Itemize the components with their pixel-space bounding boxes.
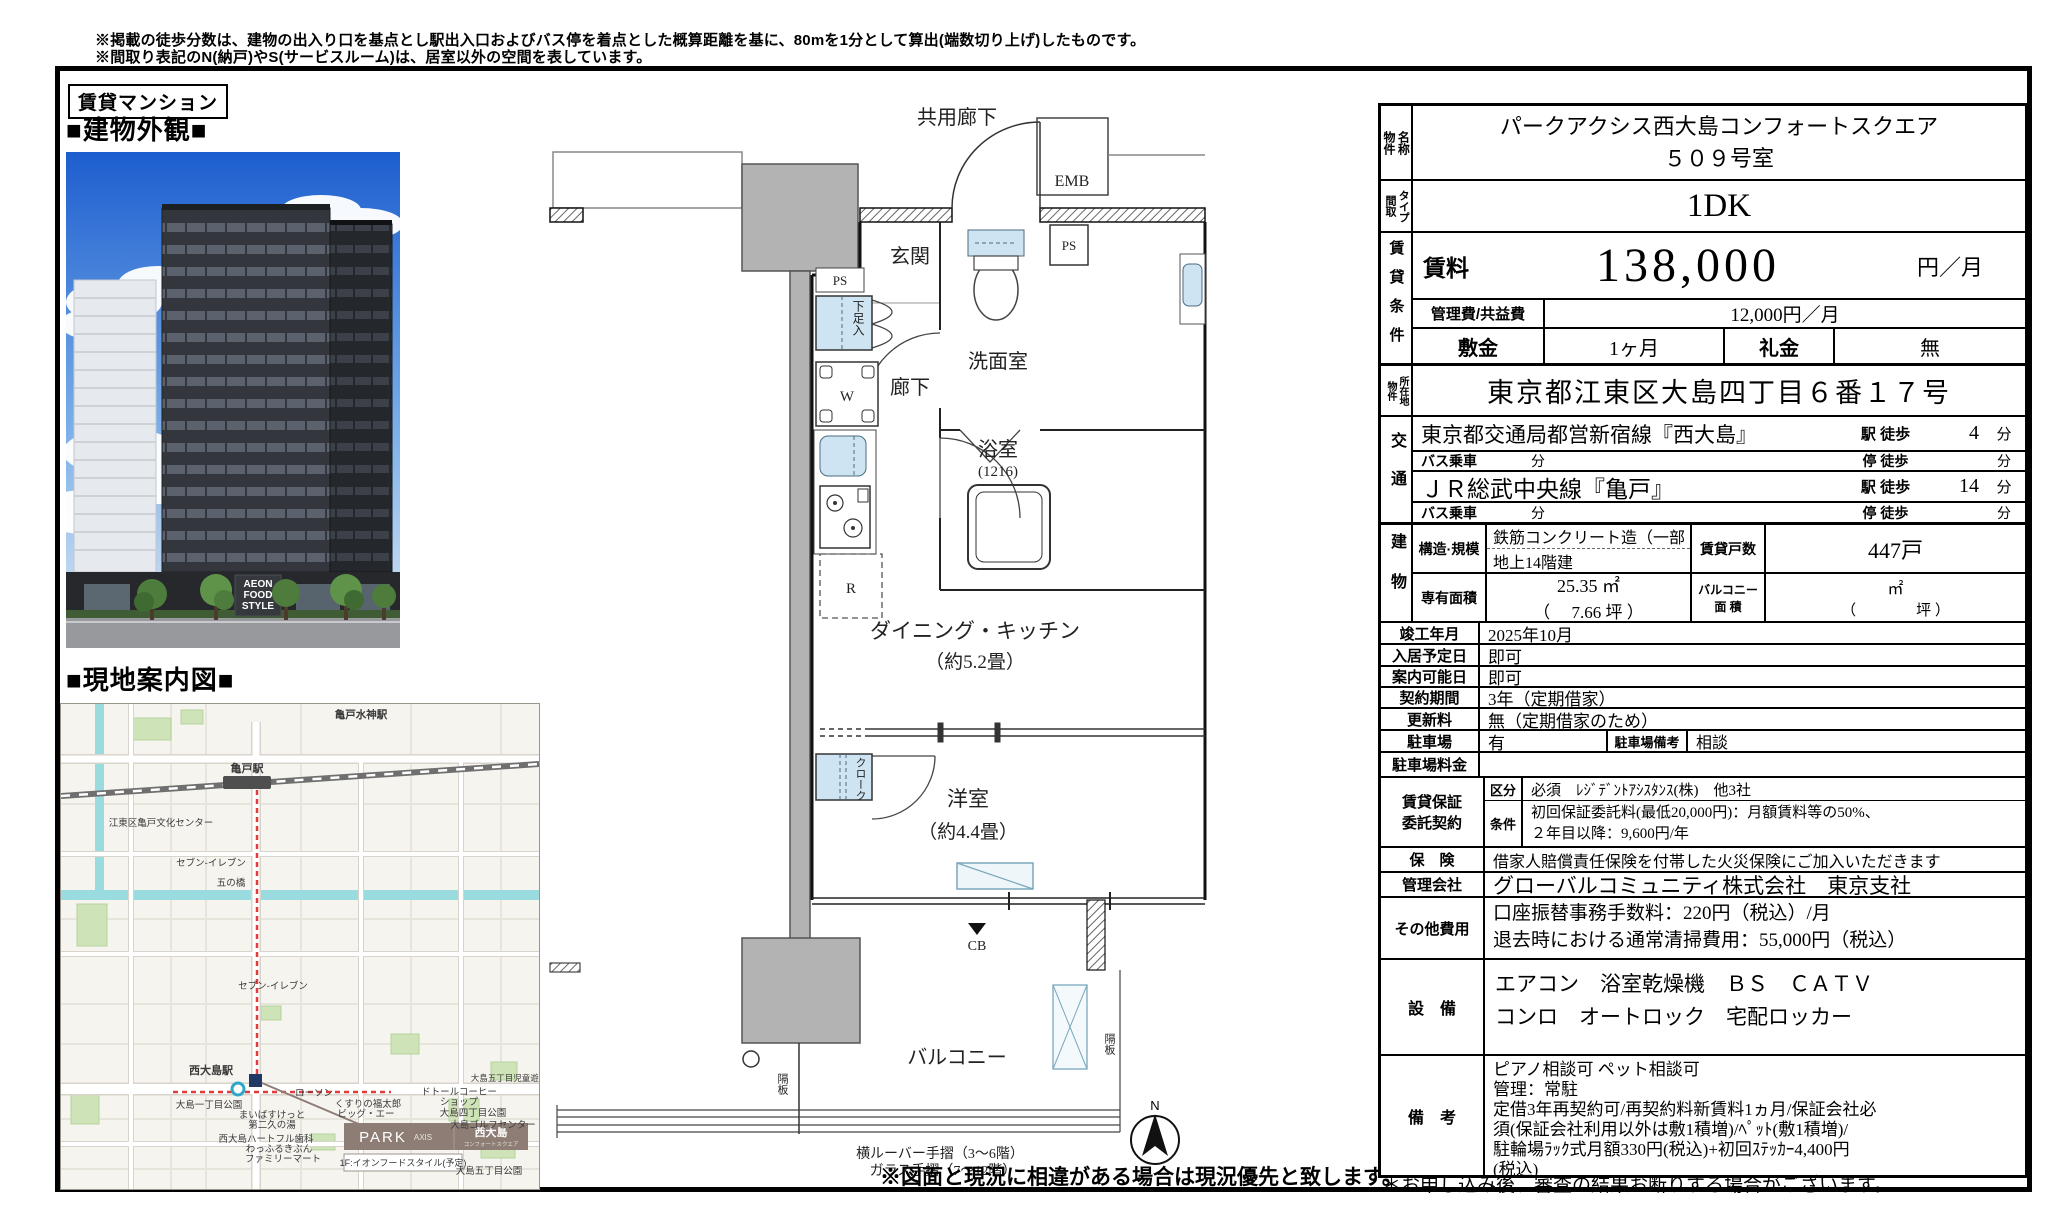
map-label: ショップ (440, 1097, 479, 1108)
room-partition (820, 723, 1205, 742)
structure-label: 構造·規模 (1413, 525, 1485, 572)
units-label: 賃貸戸数 (1690, 525, 1764, 572)
guarantee-cond-label: 条件 (1485, 801, 1521, 846)
map-label: 大島五丁目公園 (456, 1165, 523, 1177)
map-label: 江東区亀戸文化センター (109, 817, 214, 829)
guarantee-cond-value: 初回保証委託料(最低20,000円)：月額賃料等の50%、 ２年目以降：9,60… (1521, 801, 2025, 846)
plan-label-dk: ダイニング・キッチン (870, 619, 1080, 643)
group-access: 交通 東京都交通局都営新宿線『西大島』 駅 徒歩 4 分 バス乗車 分 停 徒歩… (1381, 415, 2025, 522)
management-fee-label: 管理費/共益費 (1413, 300, 1543, 327)
key-money-label: 礼金 (1723, 329, 1833, 363)
parking-fee-value (1478, 753, 2025, 776)
plan-label-washroom: 洗面室 (968, 350, 1028, 373)
equipment-label: 設 備 (1381, 960, 1483, 1054)
plan-label-fridge: R (846, 581, 856, 597)
management-label: 管理会社 (1381, 873, 1483, 896)
map-label: ローソン (295, 1088, 333, 1099)
access3-line: ＪＲ総武中央線『亀戸』 (1413, 472, 1838, 501)
area-value: 25.35 ㎡ (1557, 574, 1620, 598)
plan-label-closet: クローク (854, 757, 866, 801)
access4-mid: 分 (1508, 503, 1568, 522)
plan-label-washer: W (840, 389, 855, 405)
insurance-label: 保 険 (1381, 848, 1483, 871)
plan-label-bath: 浴室 (978, 438, 1018, 461)
deposit-label: 敷金 (1413, 329, 1543, 363)
map-label: 亀戸駅 (231, 761, 264, 775)
key-money-value: 無 (1833, 329, 2025, 363)
plan-label-balcony: バルコニー (907, 1047, 1007, 1069)
kameido-station-marker (223, 776, 271, 789)
other-fees-value: 口座振替事務手数料：220円（税込）/月 退去時における通常清掃費用：55,00… (1483, 898, 2025, 958)
access2-mid: 分 (1508, 452, 1568, 470)
renewal-value: 無（定期借家のため） (1478, 709, 2025, 729)
map-label: セブン-イレブン (176, 857, 246, 869)
plan-label-cb: CB (968, 939, 987, 954)
row-management-fee: 管理費/共益費 12,000円／月 (1413, 298, 2025, 327)
row-access-3: ＪＲ総武中央線『亀戸』 駅 徒歩 14 分 (1413, 470, 2025, 501)
plan-label-emb: EMB (1055, 173, 1090, 190)
cb-marker-icon (968, 923, 986, 935)
row-rent: 賃料 138,000 円／月 (1413, 233, 2025, 298)
park-axis-brand: PARK (359, 1129, 407, 1146)
plan-label-bath-size: (1216) (978, 464, 1018, 480)
parking-fee-label: 駐車場料金 (1381, 753, 1478, 776)
row-equipment: 設 備 エアコン 浴室乾燥機 ＢＳ ＣＡＴＶ コンロ オートロック 宅配ロッカー (1381, 958, 2025, 1054)
aeon-sign-line3: STYLE (242, 601, 275, 612)
white-building (74, 280, 156, 572)
row-area: 専有面積 25.35 ㎡ （ 7.66 坪 ） バルコニー 面 積 ㎡ （ 坪 … (1413, 572, 2025, 621)
insurance-value: 借家人賠償責任保険を付帯した火災保険にご加入いただきます (1483, 848, 2025, 871)
access4-unit: 分 (1983, 503, 2025, 522)
row-viewing: 案内可能日 即可 (1381, 665, 2025, 686)
map-label: 大島四丁目公園 (440, 1107, 507, 1119)
building-label: 建物 (1384, 533, 1408, 613)
map-heading: ■現地案内図■ (66, 660, 234, 697)
guarantee-label: 賃貸保証 委託契約 (1381, 778, 1483, 846)
parking-note-label: 駐車場備考 (1606, 731, 1686, 751)
row-renewal: 更新料 無（定期借家のため） (1381, 707, 2025, 729)
viewing-value: 即可 (1478, 667, 2025, 686)
access1-unit: 分 (1983, 417, 2025, 450)
map-label: 西大島駅 (189, 1063, 233, 1077)
plan-label-entrance: 玄関 (890, 245, 930, 268)
access3-unit: 分 (1983, 472, 2025, 501)
floor-plan: 共用廊下 EMB (520, 78, 1230, 1178)
row-access-4: バス乗車 分 停 徒歩 分 (1413, 501, 2025, 522)
map-label: ファミリーマート (245, 1154, 321, 1165)
park-axis-name-sub: コンフォートスクエア (464, 1141, 519, 1148)
kitchen-counter (814, 430, 876, 554)
plan-label-dk-size: （約5.2畳） (925, 651, 1025, 673)
movein-value: 即可 (1478, 645, 2025, 665)
area-label: 専有面積 (1413, 574, 1485, 621)
access4-mode: 停 徒歩 (1838, 503, 1933, 522)
main-tower (162, 204, 392, 572)
row-layout-type: 間取 タイプ 1DK (1381, 179, 2025, 231)
row-parking: 駐車場 有 駐車場備考 相談 (1381, 729, 2025, 751)
neighbor-outline (553, 152, 742, 208)
row-insurance: 保 険 借家人賠償責任保険を付帯した火災保険にご加入いただきます (1381, 846, 2025, 871)
access3-mode: 駅 徒歩 (1838, 472, 1933, 501)
row-other-fees: その他費用 口座振替事務手数料：220円（税込）/月 退去時における通常清掃費用… (1381, 896, 2025, 958)
row-completion: 竣工年月 2025年10月 (1381, 621, 2025, 643)
toilet-fixture (968, 230, 1024, 320)
deposit-value: 1ヶ月 (1543, 329, 1723, 363)
structure-line2: 地上14階建 (1487, 549, 1573, 572)
area-tsubo: （ 7.66 坪 ） (1533, 598, 1644, 621)
management-fee-value: 12,000円／月 (1543, 300, 2025, 327)
row-parking-fee: 駐車場料金 (1381, 751, 2025, 776)
plan-label-north: N (1150, 1098, 1159, 1113)
remarks-label: 備 考 (1381, 1056, 1483, 1175)
access1-line: 東京都交通局都営新宿線『西大島』 (1413, 417, 1838, 450)
access2-mode: 停 徒歩 (1838, 452, 1933, 470)
structure-line1: 鉄筋コンクリート造（一部 (1487, 525, 1690, 549)
rent-value: 138,000 (1501, 233, 1875, 298)
property-name-value: パークアクシス西大島コンフォートスクエア ５０９号室 (1411, 106, 2025, 179)
access2-label: バス乗車 (1413, 452, 1508, 470)
plan-label-corridor: 廊下 (890, 376, 930, 399)
layout-type-label: 間取 タイプ (1383, 190, 1409, 223)
row-guarantee-cond: 条件 初回保証委託料(最低20,000円)：月額賃料等の50%、 ２年目以降：9… (1485, 800, 2025, 846)
balcony-area-value: ㎡ (1887, 575, 1903, 599)
balcony-side-wall (1087, 900, 1105, 970)
renewal-label: 更新料 (1381, 709, 1478, 729)
map-label: セブン-イレブン (238, 980, 308, 992)
entrance-door (952, 122, 1040, 208)
north-compass-icon: N (1131, 1098, 1179, 1164)
site-marker (249, 1074, 262, 1087)
row-management-company: 管理会社 グローバルコミュニティ株式会社 東京支社 (1381, 871, 2025, 896)
map-label: 第二久の湯 (248, 1119, 296, 1131)
map-label: 大島一丁目公園 (176, 1099, 243, 1111)
units-value: 447戸 (1764, 525, 2025, 572)
management-value: グローバルコミュニティ株式会社 東京支社 (1483, 873, 2025, 896)
access2-unit: 分 (1983, 452, 2025, 470)
park-axis-brand-sub: AXIS (414, 1133, 432, 1142)
location-map: PARK AXIS 西大島 コンフォートスクエア 1F:イオンフードスタイル(予… (60, 703, 540, 1190)
building-exterior-photo: AEON FOOD STYLE (66, 152, 400, 648)
bathtub (968, 485, 1050, 569)
access1-min: 4 (1933, 417, 1983, 450)
property-detail-table: 物件 名称 パークアクシス西大島コンフォートスクエア ５０９号室 間取 タイプ … (1378, 103, 2028, 1178)
park-axis-note: 1F:イオンフードスタイル(予定) (340, 1157, 467, 1168)
completion-value: 2025年10月 (1478, 623, 2025, 643)
nishi-ojima-station-marker (232, 1083, 244, 1095)
aeon-sign-line2: FOOD (244, 590, 273, 601)
ac-unit (1053, 985, 1087, 1069)
layout-type-value: 1DK (1411, 181, 2025, 231)
balcony-area-tsubo: （ 坪 ） (1841, 599, 1950, 620)
plan-label-partition-right: 隔板 (1103, 1033, 1116, 1056)
access4-min (1933, 503, 1983, 522)
row-property-name: 物件 名称 パークアクシス西大島コンフォートスクエア ５０９号室 (1381, 106, 2025, 179)
other-fees-label: その他費用 (1381, 898, 1483, 958)
plan-label-bedroom-size: （約4.4畳） (918, 821, 1018, 843)
equipment-value: エアコン 浴室乾燥機 ＢＳ ＣＡＴＶ コンロ オートロック 宅配ロッカー (1483, 960, 2025, 1054)
balcony-area-label: バルコニー 面 積 (1690, 574, 1764, 621)
aeon-sign-line1: AEON (244, 579, 273, 590)
plan-label-ps-top: PS (1062, 238, 1076, 253)
completion-label: 竣工年月 (1381, 623, 1478, 643)
row-deposit-keymoney: 敷金 1ヶ月 礼金 無 (1413, 327, 2025, 363)
plan-label-bedroom: 洋室 (947, 787, 989, 811)
address-label: 物件 所在地 (1384, 376, 1408, 406)
group-rent-conditions: 賃貸条件 賃料 138,000 円／月 管理費/共益費 12,000円／月 敷金… (1381, 231, 2025, 363)
access4-label: バス乗車 (1413, 503, 1508, 522)
plan-label-shoe-box: 下足入 (851, 300, 865, 336)
row-access-1: 東京都交通局都営新宿線『西大島』 駅 徒歩 4 分 (1413, 417, 2025, 450)
access3-min: 14 (1933, 472, 1983, 501)
map-label: 五の橋 (217, 877, 246, 889)
window-wall (812, 892, 1205, 910)
access2-min (1933, 452, 1983, 470)
parking-value: 有 (1478, 731, 1606, 751)
map-label: ビッグ・エー (337, 1108, 394, 1120)
row-contract: 契約期間 3年（定期借家） (1381, 686, 2025, 707)
screening-note: ＊お申し込み後、審査の結果お断りする場合がございます。 (1382, 1170, 1893, 1197)
rent-unit: 円／月 (1875, 233, 2025, 298)
guarantee-kubun-value: 必須 ﾚｼﾞﾃﾞﾝﾄｱｼｽﾀﾝｽ(株) 他3社 (1521, 778, 2025, 800)
parking-label: 駐車場 (1381, 731, 1478, 751)
row-address: 物件 所在地 東京都江東区大島四丁目６番１７号 (1381, 363, 2025, 415)
rent-section-label: 賃貸条件 (1386, 240, 1407, 356)
address-value: 東京都江東区大島四丁目６番１７号 (1411, 366, 2025, 415)
plan-label-ps-left: PS (833, 273, 847, 288)
row-access-2: バス乗車 分 停 徒歩 分 (1413, 450, 2025, 470)
plan-label-partition-left: 隔板 (776, 1073, 789, 1096)
row-movein: 入居予定日 即可 (1381, 643, 2025, 665)
map-label: 亀戸水神駅 (334, 708, 388, 721)
drain-icon (743, 1051, 759, 1067)
listing-sheet: ※掲載の徒歩分数は、建物の出入り口を基点とし駅出入口およびバス停を着点とした概算… (0, 0, 2056, 1207)
group-building: 建物 構造·規模 鉄筋コンクリート造（一部 地上14階建 賃貸戸数 447戸 専… (1381, 522, 2025, 621)
guarantee-kubun-label: 区分 (1485, 778, 1521, 800)
window-counter (957, 863, 1033, 889)
exterior-heading: ■建物外観■ (66, 110, 207, 147)
contract-value: 3年（定期借家） (1478, 688, 2025, 707)
row-guarantee-kubun: 区分 必須 ﾚｼﾞﾃﾞﾝﾄｱｼｽﾀﾝｽ(株) 他3社 (1485, 778, 2025, 800)
plan-disclaimer: ※図面と現況に相違がある場合は現況優先と致します。 (880, 1161, 1403, 1191)
movein-label: 入居予定日 (1381, 645, 1478, 665)
access1-mode: 駅 徒歩 (1838, 417, 1933, 450)
parking-note-value: 相談 (1686, 731, 2025, 751)
group-guarantee: 賃貸保証 委託契約 区分 必須 ﾚｼﾞﾃﾞﾝﾄｱｼｽﾀﾝｽ(株) 他3社 条件 … (1381, 776, 2025, 846)
rent-label: 賃料 (1413, 233, 1501, 298)
plan-label-rail-note1: 横ルーバー手摺（3～6階） (856, 1146, 1024, 1162)
row-structure: 構造·規模 鉄筋コンクリート造（一部 地上14階建 賃貸戸数 447戸 (1413, 525, 2025, 572)
row-remarks: 備 考 ピアノ相談可 ペット相談可 管理：常駐 定借3年再契約可/再契約料新賃料… (1381, 1054, 2025, 1175)
access-label: 交通 (1384, 432, 1408, 508)
property-name-label: 物件 名称 (1382, 131, 1411, 155)
remarks-value: ピアノ相談可 ペット相談可 管理：常駐 定借3年再契約可/再契約料新賃料1ヵ月/… (1483, 1056, 2025, 1175)
contract-label: 契約期間 (1381, 688, 1478, 707)
viewing-label: 案内可能日 (1381, 667, 1478, 686)
wall-stub-left (550, 208, 583, 222)
plan-label-common-corridor: 共用廊下 (917, 106, 997, 129)
